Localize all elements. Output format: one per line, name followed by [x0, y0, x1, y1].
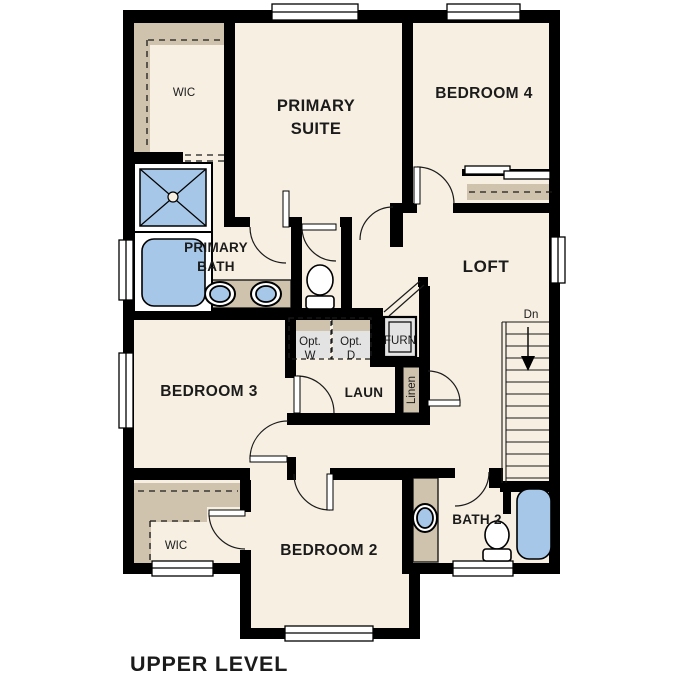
wic-bedroom2-shelf-left — [134, 507, 151, 563]
wic-bedroom2-label: WIC — [165, 540, 187, 552]
water-closet-toilet-tank — [306, 296, 334, 309]
primary-bath-label-line2: BATH — [197, 259, 235, 274]
primary-suite-label-line2: SUITE — [291, 120, 342, 138]
sink-left-basin — [210, 286, 230, 302]
wic-bedroom2-shelf-top — [134, 483, 242, 507]
window-bedroom4-top — [447, 4, 520, 20]
bedroom2-label: BEDROOM 2 — [280, 542, 377, 559]
wic-bedroom2-door-leaf — [209, 510, 245, 516]
loft-label: LOFT — [463, 257, 510, 276]
opt-dryer-label-line2: D — [347, 350, 355, 362]
water-closet-door-leaf — [302, 224, 336, 230]
bath2-toilet-tank — [483, 549, 511, 561]
wic-primary-label: WIC — [173, 87, 195, 99]
window-primary-bath-left — [119, 240, 133, 300]
opt-dryer-label-line1: Opt. — [340, 336, 362, 348]
window-loft-right — [551, 237, 565, 283]
bath2-tub — [517, 489, 551, 559]
laundry-label: LAUN — [345, 385, 384, 400]
window-bedroom2-bottom — [285, 626, 373, 641]
window-wic2-bottom — [152, 561, 213, 576]
primary-bath-door-leaf — [283, 191, 289, 227]
linen-door-leaf — [428, 400, 460, 406]
primary-suite-label-line1: PRIMARY — [277, 97, 355, 115]
opt-washer-label-line2: W — [305, 350, 316, 362]
bedroom4-label: BEDROOM 4 — [435, 85, 532, 102]
bedroom4-door-leaf — [414, 167, 420, 204]
floorplan-canvas: WIC PRIMARY SUITE BEDROOM 4 PRIMARY BATH… — [0, 0, 687, 687]
bedroom2-door-leaf — [327, 474, 333, 510]
stairs-down-label: Dn — [524, 309, 539, 321]
window-bath2-bottom — [453, 561, 513, 576]
linen-label: Linen — [406, 376, 418, 404]
primary-bath-label-line1: PRIMARY — [184, 240, 248, 255]
sink-right-basin — [256, 286, 276, 302]
furnace-label: FURN — [384, 335, 416, 347]
bedroom3-label: BEDROOM 3 — [160, 383, 257, 400]
dryer-shelf — [333, 319, 370, 331]
opt-washer-label-line1: Opt. — [299, 336, 321, 348]
bath2-sink-basin — [417, 508, 433, 528]
bath2-label: BATH 2 — [452, 512, 502, 527]
floorplan-drawing: WIC PRIMARY SUITE BEDROOM 4 PRIMARY BATH… — [0, 0, 687, 687]
plan-title: UPPER LEVEL — [130, 652, 288, 676]
window-bedroom3-left — [119, 353, 133, 428]
laundry-door-leaf — [294, 376, 300, 413]
bedroom3-door-leaf — [250, 456, 287, 462]
window-primary-suite-top — [272, 4, 358, 20]
water-closet-toilet-bowl — [307, 265, 333, 295]
